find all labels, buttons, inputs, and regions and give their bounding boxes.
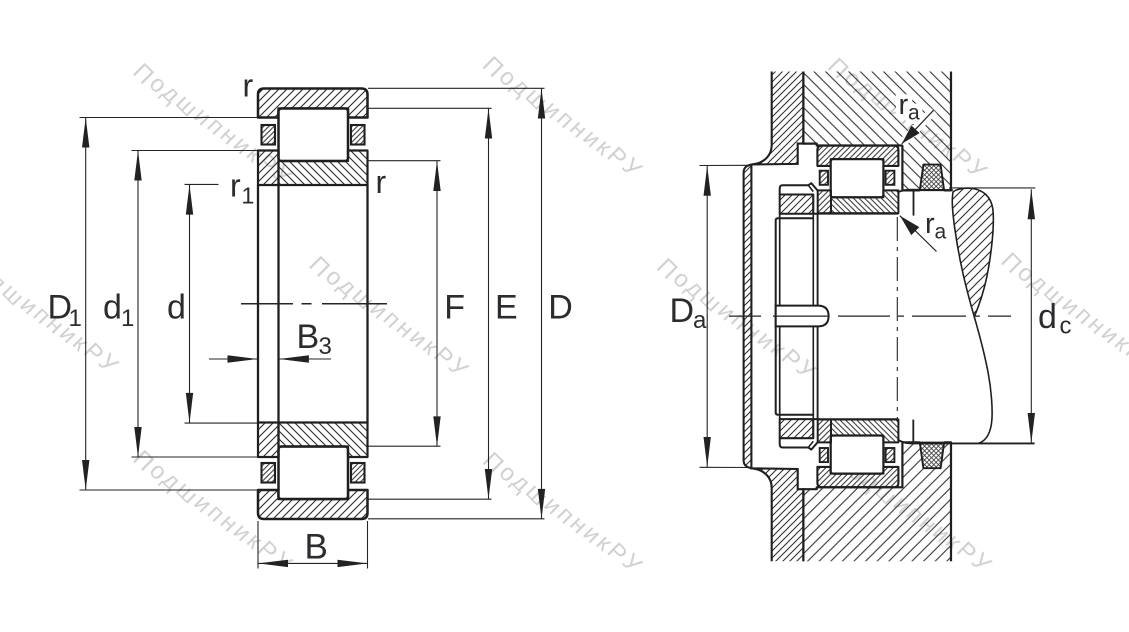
svg-text:3: 3 [319,333,332,360]
svg-text:1: 1 [121,305,134,332]
svg-text:B: B [297,318,320,356]
svg-text:ПодшипникРУ: ПодшипникРУ [475,445,650,584]
svg-text:B: B [305,527,328,566]
svg-text:r: r [230,168,241,204]
svg-text:a: a [693,307,707,334]
svg-text:r: r [925,208,935,240]
svg-text:1: 1 [242,183,255,209]
svg-text:ПодшипникРУ: ПодшипникРУ [475,49,650,188]
svg-text:E: E [495,288,518,326]
svg-text:r: r [243,68,254,104]
svg-text:d: d [1038,298,1057,336]
svg-text:d: d [167,289,186,327]
svg-text:D: D [670,292,695,330]
svg-text:r: r [899,89,909,121]
svg-text:D: D [548,288,573,326]
svg-text:d: d [103,289,122,327]
svg-text:a: a [908,102,920,125]
svg-text:1: 1 [69,305,82,332]
svg-text:c: c [1060,313,1072,340]
svg-text:r: r [376,164,387,200]
svg-text:F: F [444,288,465,326]
svg-text:a: a [935,221,947,244]
